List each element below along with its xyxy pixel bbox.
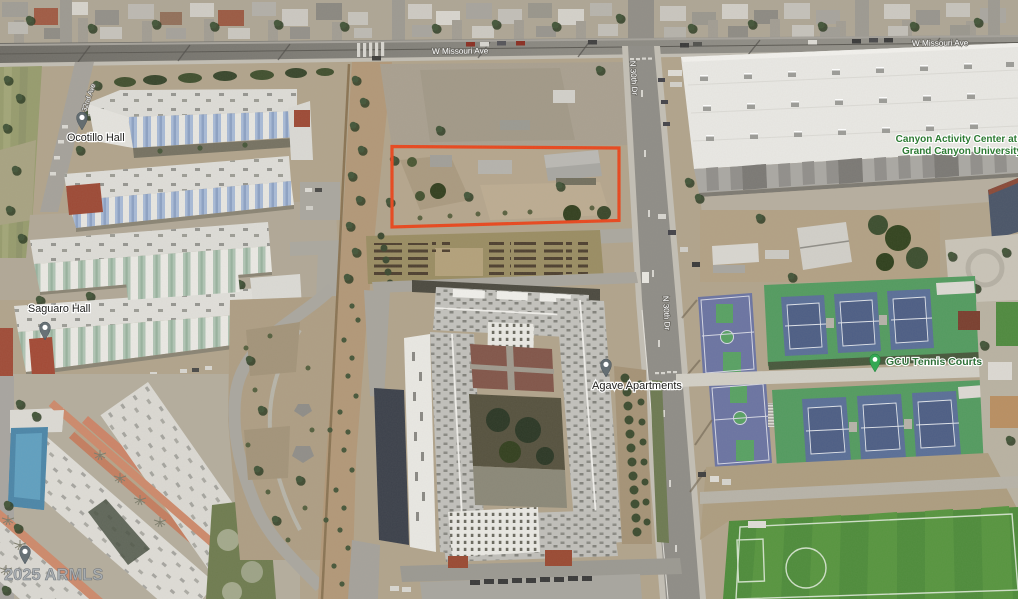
svg-text:Saguaro Hall: Saguaro Hall <box>28 303 90 315</box>
svg-text:Agave Apartments: Agave Apartments <box>592 380 682 392</box>
svg-text:Canyon Activity Center at: Canyon Activity Center at <box>896 134 1018 145</box>
svg-text:2025 ARMLS: 2025 ARMLS <box>4 566 103 584</box>
svg-text:N 30th Dr: N 30th Dr <box>661 296 672 331</box>
svg-text:W Missouri Ave: W Missouri Ave <box>912 38 969 48</box>
svg-text:W Missouri Ave: W Missouri Ave <box>432 46 489 56</box>
svg-text:GCU Tennis Courts: GCU Tennis Courts <box>886 356 982 368</box>
svg-text:Grand Canyon University: Grand Canyon University <box>902 146 1018 157</box>
svg-text:Ocotillo Hall: Ocotillo Hall <box>67 132 125 144</box>
